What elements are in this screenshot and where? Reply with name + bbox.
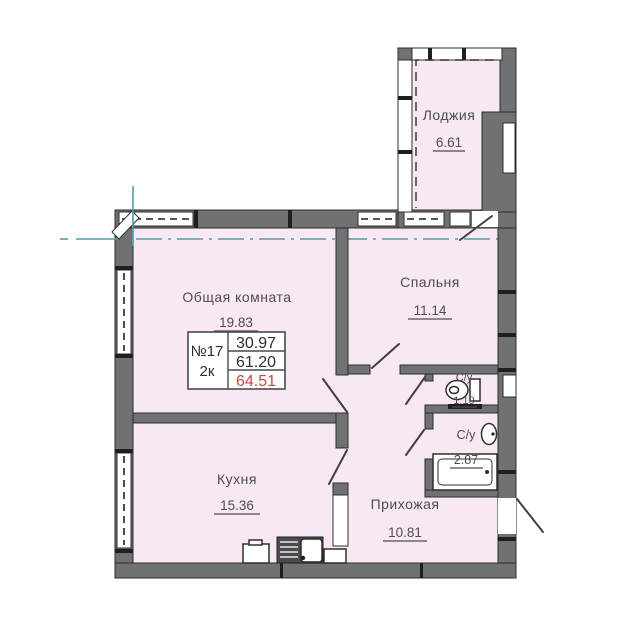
loggia-area: 6.61: [436, 135, 462, 150]
window-loggia-sill-2: [450, 212, 470, 226]
wc-small-name: С/у: [456, 372, 473, 384]
wall-bath-left-lower: [425, 459, 433, 490]
floor-plan-page: Лоджия 6.61 Общая комната 19.83 Спальня …: [0, 0, 630, 630]
living-room-name: Общая комната: [182, 289, 291, 305]
wall-living-bedroom: [336, 228, 348, 375]
unit-area-without-loggia: 61.20: [236, 354, 276, 371]
hallway-area: 10.81: [388, 525, 422, 540]
kitchen-counter-icon: [324, 549, 346, 563]
unit-info-table: №17 2к 30.97 61.20 64.51: [188, 332, 285, 390]
vent-shaft: [503, 375, 516, 397]
wall-bedroom-bottom-left: [348, 365, 370, 374]
living-room-area: 19.83: [219, 315, 253, 330]
hallway-name: Прихожая: [371, 496, 440, 512]
bedroom-area: 11.14: [414, 303, 447, 318]
wall-bedroom-bottom-right: [400, 365, 498, 374]
window-loggia-left: [398, 48, 412, 212]
cabinet-shaft: [333, 495, 348, 546]
floor-plan-drawing: Лоджия 6.61 Общая комната 19.83 Спальня …: [0, 0, 630, 630]
opening-entrance: [498, 498, 516, 534]
wall-cabinet-cap: [333, 483, 348, 495]
loggia-name: Лоджия: [423, 107, 476, 123]
door-swing-entrance: [517, 499, 543, 532]
wall-loggia-corner: [398, 48, 412, 60]
stove-icon: [243, 540, 269, 563]
kitchen-name: Кухня: [217, 471, 257, 487]
unit-type: 2к: [200, 363, 215, 380]
wall-bottom: [115, 563, 516, 578]
wall-living-kitchen: [133, 413, 336, 423]
unit-living-area: 30.97: [236, 335, 276, 352]
wc-big-name: С/у: [457, 428, 477, 442]
wc-big-area: 2.87: [454, 453, 478, 467]
wc-small-area: 1.19: [453, 395, 474, 407]
bedroom-name: Спальня: [400, 274, 460, 290]
kitchen-area: 15.36: [220, 498, 254, 513]
unit-total-area: 64.51: [236, 373, 276, 390]
kitchen-sink-icon: [277, 537, 323, 563]
wall-kitchen-hallway: [336, 413, 348, 448]
sink-icon: [482, 424, 497, 445]
wall-bath-left-upper: [425, 413, 433, 429]
window-loggia-top: [398, 48, 502, 60]
opening-balcony-door: [472, 211, 498, 227]
unit-number: №17: [191, 343, 224, 360]
niche-loggia-wall: [503, 123, 515, 173]
wall-wc-small-stub: [425, 374, 433, 381]
